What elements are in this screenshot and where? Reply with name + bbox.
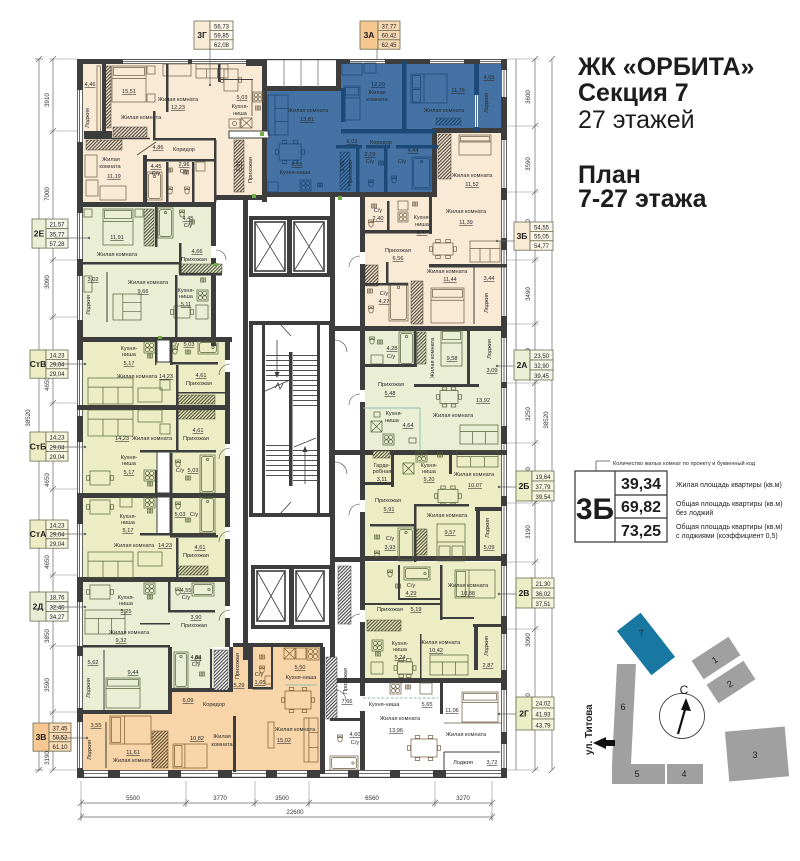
svg-text:3,11: 3,11 — [377, 477, 387, 483]
svg-text:29,04: 29,04 — [49, 372, 65, 378]
svg-text:Секция 7: Секция 7 — [578, 79, 689, 107]
svg-text:3Г: 3Г — [197, 30, 207, 40]
svg-text:ниша: ниша — [122, 461, 137, 467]
svg-text:29,04: 29,04 — [49, 363, 65, 369]
svg-text:11,76: 11,76 — [451, 88, 465, 94]
svg-text:ниша: ниша — [415, 222, 430, 228]
svg-text:5,50: 5,50 — [295, 665, 306, 671]
svg-text:4,29: 4,29 — [406, 591, 417, 597]
svg-text:Жилая: Жилая — [102, 157, 120, 163]
svg-text:5,17: 5,17 — [123, 528, 134, 534]
svg-text:15,51: 15,51 — [122, 89, 136, 95]
svg-text:С/у: С/у — [380, 291, 389, 297]
svg-text:Жилая комната: Жилая комната — [132, 436, 173, 442]
svg-text:ниша: ниша — [385, 418, 400, 424]
svg-text:5,91: 5,91 — [384, 507, 395, 513]
svg-text:Прихожая: Прихожая — [375, 498, 401, 504]
svg-text:2Г: 2Г — [519, 709, 529, 719]
svg-text:Прихожая: Прихожая — [181, 623, 207, 629]
svg-text:14,23: 14,23 — [49, 353, 65, 359]
svg-text:2,19: 2,19 — [365, 152, 376, 158]
svg-text:61,10: 61,10 — [52, 745, 68, 751]
svg-text:35,77: 35,77 — [49, 232, 65, 238]
svg-text:Прихожая: Прихожая — [348, 160, 354, 186]
svg-text:3090: 3090 — [525, 633, 532, 647]
svg-text:12,20: 12,20 — [371, 82, 385, 88]
svg-text:9,66: 9,66 — [138, 289, 149, 295]
svg-text:24,02: 24,02 — [535, 702, 551, 708]
svg-text:3850: 3850 — [44, 629, 51, 643]
svg-text:41,93: 41,93 — [535, 713, 551, 719]
svg-text:54,77: 54,77 — [534, 244, 550, 250]
svg-text:Жилая комната: Жилая комната — [427, 269, 468, 275]
svg-text:5,19: 5,19 — [411, 607, 422, 613]
svg-text:Жилая комната: Жилая комната — [427, 513, 468, 519]
svg-text:С/у: С/у — [387, 354, 396, 360]
svg-text:Жилая комната: Жилая комната — [380, 716, 421, 722]
svg-text:3Б: 3Б — [517, 231, 528, 241]
svg-text:5,29: 5,29 — [234, 683, 245, 689]
svg-text:54,55: 54,55 — [534, 225, 550, 231]
svg-text:комната: комната — [99, 164, 121, 170]
svg-text:4,45: 4,45 — [183, 216, 194, 222]
svg-text:4: 4 — [681, 769, 686, 779]
svg-text:6: 6 — [620, 702, 625, 712]
svg-text:69,82: 69,82 — [621, 499, 661, 516]
svg-text:43,79: 43,79 — [535, 724, 551, 730]
svg-text:5,20: 5,20 — [424, 477, 435, 483]
svg-text:6,55: 6,55 — [292, 162, 303, 168]
svg-text:С/у: С/у — [192, 662, 201, 668]
svg-text:комната: комната — [366, 97, 388, 103]
svg-text:3,02: 3,02 — [88, 277, 99, 283]
svg-text:С/у: С/у — [152, 171, 161, 177]
svg-text:Кухня-ниша: Кухня-ниша — [286, 675, 318, 681]
svg-text:Жилая комната: Жилая комната — [128, 280, 169, 286]
svg-text:29,04: 29,04 — [49, 455, 65, 461]
svg-text:4,45: 4,45 — [151, 164, 162, 170]
svg-text:СтВ: СтВ — [30, 359, 46, 369]
svg-text:11,06: 11,06 — [445, 708, 459, 714]
svg-text:15,02: 15,02 — [277, 738, 291, 744]
svg-text:55,05: 55,05 — [534, 235, 550, 241]
svg-text:С/у: С/у — [366, 159, 375, 165]
svg-text:без лоджий: без лоджий — [676, 509, 713, 517]
svg-text:19,64: 19,64 — [535, 475, 551, 481]
svg-text:С/у: С/у — [351, 740, 360, 746]
svg-text:5,17: 5,17 — [124, 470, 135, 476]
svg-text:Жилая комната: Жилая комната — [448, 583, 489, 589]
svg-text:14,23: 14,23 — [115, 436, 129, 442]
svg-text:5: 5 — [634, 769, 639, 779]
svg-text:Лоджия: Лоджия — [484, 293, 490, 313]
svg-text:4,84: 4,84 — [191, 655, 202, 661]
svg-text:Лоджия: Лоджия — [484, 636, 490, 656]
svg-text:37,79: 37,79 — [535, 485, 551, 491]
svg-text:4,44: 4,44 — [408, 148, 419, 154]
svg-text:Жилая комната: Жилая комната — [454, 472, 495, 478]
svg-text:3: 3 — [752, 750, 757, 760]
svg-text:62,45: 62,45 — [381, 43, 397, 49]
svg-text:2,87: 2,87 — [483, 663, 494, 669]
svg-text:14,23: 14,23 — [158, 543, 172, 549]
svg-text:14,23: 14,23 — [49, 436, 65, 442]
svg-text:23,50: 23,50 — [534, 354, 550, 360]
svg-text:5,03: 5,03 — [175, 512, 186, 518]
svg-text:27 этажей: 27 этажей — [578, 106, 695, 134]
svg-text:С/у: С/у — [386, 536, 395, 542]
svg-text:29,04: 29,04 — [49, 533, 65, 539]
svg-text:5,81: 5,81 — [236, 161, 242, 172]
svg-text:Общая площадь квартиры (кв.м): Общая площадь квартиры (кв.м) — [676, 500, 783, 508]
svg-text:комната: комната — [211, 742, 233, 748]
svg-text:2В: 2В — [519, 588, 530, 598]
svg-text:5,03: 5,03 — [184, 342, 195, 348]
svg-text:С: С — [680, 683, 689, 697]
svg-text:10,07: 10,07 — [468, 483, 482, 489]
svg-text:11,61: 11,61 — [126, 750, 140, 756]
svg-text:ниша: ниша — [422, 469, 437, 475]
svg-text:10,88: 10,88 — [461, 591, 475, 597]
svg-text:ниша: ниша — [233, 111, 248, 117]
svg-text:Жилая комната: Жилая комната — [113, 758, 154, 764]
svg-text:4,05: 4,05 — [484, 75, 495, 81]
svg-text:С/у: С/у — [190, 512, 199, 518]
svg-text:С/у: С/у — [374, 208, 383, 214]
svg-text:Лоджия: Лоджия — [86, 678, 92, 698]
svg-text:32,46: 32,46 — [49, 605, 65, 611]
svg-text:ЖК «ОРБИТА»: ЖК «ОРБИТА» — [577, 53, 754, 81]
svg-text:ниша: ниша — [393, 647, 408, 653]
svg-text:Жилая комната: Жилая комната — [114, 543, 155, 549]
svg-text:робная: робная — [373, 469, 392, 475]
svg-text:9,57: 9,57 — [445, 530, 456, 536]
svg-text:2Д: 2Д — [33, 602, 44, 612]
svg-text:62,08: 62,08 — [214, 43, 230, 49]
svg-text:Жилая комната: Жилая комната — [446, 732, 487, 738]
svg-text:Жилая комната: Жилая комната — [275, 727, 316, 733]
svg-text:Жилая комната: Жилая комната — [158, 97, 199, 103]
svg-text:11,91: 11,91 — [110, 235, 124, 241]
svg-text:5,65: 5,65 — [422, 702, 433, 708]
svg-text:Жилая комната: Жилая комната — [420, 640, 461, 646]
svg-text:3590: 3590 — [525, 157, 532, 171]
svg-text:9,58: 9,58 — [447, 356, 458, 362]
svg-text:Кухня-: Кухня- — [414, 215, 431, 221]
svg-text:18,76: 18,76 — [49, 596, 65, 602]
svg-text:4650: 4650 — [44, 555, 51, 569]
svg-text:Лоджия: Лоджия — [86, 295, 92, 315]
svg-text:2Е: 2Е — [34, 229, 45, 239]
svg-text:3600: 3600 — [525, 90, 532, 104]
svg-text:Лоджия: Лоджия — [484, 93, 490, 113]
svg-text:Прихожая: Прихожая — [186, 381, 212, 387]
svg-text:11,52: 11,52 — [465, 182, 479, 188]
svg-text:60,42: 60,42 — [381, 34, 397, 40]
svg-text:59,52: 59,52 — [52, 736, 68, 742]
svg-text:3,72: 3,72 — [487, 760, 498, 766]
svg-text:3А: 3А — [364, 30, 375, 40]
svg-text:12,23: 12,23 — [171, 105, 185, 111]
svg-text:Жилая: Жилая — [368, 90, 386, 96]
svg-text:5,09: 5,09 — [484, 545, 495, 551]
svg-text:3,55: 3,55 — [91, 723, 102, 729]
svg-text:Прихожая: Прихожая — [385, 248, 411, 254]
svg-text:59,85: 59,85 — [214, 34, 230, 40]
svg-text:С/у: С/у — [398, 159, 407, 165]
svg-text:11,44: 11,44 — [443, 277, 457, 283]
svg-text:С/у: С/у — [171, 342, 180, 348]
svg-text:2Б: 2Б — [519, 481, 530, 491]
svg-text:Жилая комната: Жилая комната — [288, 108, 329, 114]
svg-text:56,73: 56,73 — [214, 24, 230, 30]
svg-text:37,45: 37,45 — [52, 726, 68, 732]
svg-text:Жилая: Жилая — [213, 734, 231, 740]
svg-text:13,81: 13,81 — [300, 117, 314, 123]
svg-text:7-27 этажа: 7-27 этажа — [578, 185, 708, 213]
svg-text:3,44: 3,44 — [484, 276, 495, 282]
svg-text:С/у: С/у — [184, 223, 193, 229]
svg-text:Коридор: Коридор — [203, 702, 225, 708]
svg-text:Прихожая: Прихожая — [343, 668, 349, 694]
svg-text:С/у: С/у — [180, 169, 189, 175]
svg-text:Кухня-: Кухня- — [232, 104, 249, 110]
svg-text:3270: 3270 — [456, 795, 470, 802]
svg-text:Количество жилых комнат по про: Количество жилых комнат по проекту и бук… — [613, 460, 756, 467]
svg-text:22600: 22600 — [286, 809, 304, 816]
svg-text:Жилая комната: Жилая комната — [433, 413, 474, 419]
svg-text:39,34: 39,34 — [621, 476, 661, 493]
svg-text:6,56: 6,56 — [393, 256, 404, 262]
svg-text:5,24: 5,24 — [395, 655, 406, 661]
svg-text:Коридор: Коридор — [173, 147, 195, 153]
svg-text:Жилая комната: Жилая комната — [452, 173, 493, 179]
svg-text:4,60: 4,60 — [350, 732, 361, 738]
svg-text:3190: 3190 — [44, 751, 51, 765]
svg-text:5500: 5500 — [126, 795, 140, 802]
svg-text:Жилая комната: Жилая комната — [109, 630, 150, 636]
svg-text:С/у: С/у — [182, 595, 191, 601]
svg-text:13,92: 13,92 — [476, 398, 490, 404]
svg-text:Кухня-ниша: Кухня-ниша — [369, 702, 401, 708]
svg-text:Жилая площадь квартиры (кв.м): Жилая площадь квартиры (кв.м) — [676, 482, 782, 489]
svg-text:11,39: 11,39 — [459, 220, 473, 226]
svg-text:Прихожая: Прихожая — [235, 653, 241, 679]
svg-text:7000: 7000 — [44, 187, 51, 201]
svg-text:21,30: 21,30 — [535, 582, 551, 588]
svg-text:Жилая комната: Жилая комната — [446, 209, 487, 215]
svg-text:Жилая комната: Жилая комната — [117, 374, 158, 380]
svg-text:34,27: 34,27 — [49, 615, 65, 621]
svg-text:ниша: ниша — [119, 601, 134, 607]
svg-text:ул. Титова: ул. Титова — [584, 704, 595, 755]
svg-text:Прихожая: Прихожая — [248, 157, 254, 183]
svg-text:1,65: 1,65 — [255, 680, 266, 686]
svg-text:38520: 38520 — [543, 411, 550, 429]
svg-text:5,25: 5,25 — [121, 609, 132, 615]
svg-text:Лоджия: Лоджия — [453, 760, 473, 766]
svg-text:3500: 3500 — [275, 795, 289, 802]
svg-text:3090: 3090 — [44, 275, 51, 289]
svg-text:29,04: 29,04 — [49, 542, 65, 548]
svg-text:73,25: 73,25 — [621, 523, 661, 540]
svg-text:ниша: ниша — [121, 520, 136, 526]
svg-text:Общая площадь квартиры (кв.м): Общая площадь квартиры (кв.м) — [676, 523, 783, 531]
svg-text:4,61: 4,61 — [193, 428, 204, 434]
svg-text:37,51: 37,51 — [535, 602, 551, 608]
svg-text:3Б: 3Б — [576, 493, 614, 526]
svg-text:3190: 3190 — [525, 525, 532, 539]
svg-text:Лоджия: Лоджия — [485, 518, 491, 538]
svg-text:5,11: 5,11 — [181, 302, 191, 308]
svg-text:Жилая комната: Жилая комната — [121, 115, 162, 121]
svg-text:5,62: 5,62 — [88, 660, 99, 666]
svg-text:21,57: 21,57 — [49, 223, 65, 229]
svg-text:Прихожая: Прихожая — [181, 257, 207, 263]
svg-text:Жилая комната: Жилая комната — [97, 252, 138, 258]
svg-text:Жилая комната: Жилая комната — [424, 108, 465, 114]
svg-text:3,45: 3,45 — [340, 161, 346, 172]
svg-text:С/у: С/у — [255, 672, 264, 678]
svg-text:Прихожая: Прихожая — [183, 436, 209, 442]
svg-text:38520: 38520 — [25, 409, 32, 427]
svg-text:32,90: 32,90 — [534, 364, 550, 370]
svg-text:3В: 3В — [36, 732, 47, 742]
svg-text:57,28: 57,28 — [49, 242, 65, 248]
svg-text:36,02: 36,02 — [535, 592, 551, 598]
svg-text:5,47: 5,47 — [417, 230, 428, 236]
svg-text:Кухня-ниша: Кухня-ниша — [280, 170, 312, 176]
svg-text:С/у: С/у — [176, 468, 185, 474]
svg-text:29,04: 29,04 — [49, 445, 65, 451]
svg-text:5,48: 5,48 — [385, 391, 396, 397]
svg-text:9,44: 9,44 — [128, 670, 139, 676]
svg-text:с лоджиями (коэффициент 0,5): с лоджиями (коэффициент 0,5) — [676, 533, 778, 540]
svg-text:9,32: 9,32 — [116, 638, 127, 644]
svg-text:6560: 6560 — [365, 795, 379, 802]
svg-text:Коридор: Коридор — [370, 140, 392, 146]
svg-text:4,46: 4,46 — [85, 82, 96, 88]
svg-text:4,66: 4,66 — [192, 249, 203, 255]
svg-text:11,19: 11,19 — [107, 174, 121, 180]
svg-text:Кухня-: Кухня- — [386, 411, 403, 417]
svg-text:5,03: 5,03 — [237, 95, 248, 101]
svg-text:Лоджия: Лоджия — [85, 108, 91, 128]
svg-text:4,64: 4,64 — [403, 423, 414, 429]
svg-text:14,23: 14,23 — [159, 374, 173, 380]
svg-text:6,02: 6,02 — [347, 139, 358, 145]
svg-text:7,66: 7,66 — [342, 699, 353, 705]
svg-text:10,42: 10,42 — [429, 648, 443, 654]
svg-text:37,77: 37,77 — [381, 24, 397, 30]
svg-text:4,61: 4,61 — [196, 373, 207, 379]
svg-text:4,86: 4,86 — [153, 145, 164, 151]
svg-text:Лоджия: Лоджия — [87, 740, 93, 760]
svg-text:13,96: 13,96 — [389, 728, 403, 734]
svg-text:14,23: 14,23 — [49, 523, 65, 529]
svg-text:СтБ: СтБ — [30, 442, 46, 452]
svg-text:3,93: 3,93 — [385, 545, 396, 551]
svg-text:4650: 4650 — [44, 473, 51, 487]
svg-text:3770: 3770 — [213, 795, 227, 802]
svg-text:4,55: 4,55 — [181, 588, 192, 594]
svg-text:Лоджия: Лоджия — [487, 339, 493, 359]
svg-text:2А: 2А — [517, 360, 528, 370]
svg-text:Прихожая: Прихожая — [183, 553, 209, 559]
svg-text:СтА: СтА — [30, 529, 46, 539]
svg-text:3590: 3590 — [44, 678, 51, 692]
svg-text:ниша: ниша — [179, 294, 194, 300]
svg-text:4650: 4650 — [44, 377, 51, 391]
svg-text:ниша: ниша — [122, 352, 137, 358]
svg-text:4,28: 4,28 — [387, 346, 398, 352]
svg-text:3490: 3490 — [525, 287, 532, 301]
svg-text:3910: 3910 — [44, 93, 51, 107]
svg-text:10,82: 10,82 — [190, 736, 204, 742]
svg-text:Прихожая: Прихожая — [378, 382, 404, 388]
svg-text:2,40: 2,40 — [373, 216, 384, 222]
svg-text:Прихожая: Прихожая — [377, 607, 403, 613]
svg-text:39,45: 39,45 — [534, 374, 550, 380]
svg-text:3,09: 3,09 — [487, 368, 498, 374]
svg-text:3,90: 3,90 — [191, 615, 202, 621]
svg-text:6,09: 6,09 — [183, 698, 194, 704]
svg-text:5,03: 5,03 — [188, 468, 199, 474]
svg-text:39,54: 39,54 — [535, 495, 551, 501]
svg-text:С/у: С/у — [407, 583, 416, 589]
svg-text:4,27: 4,27 — [379, 299, 390, 305]
svg-text:2,96: 2,96 — [179, 162, 190, 168]
svg-text:Жилая комната: Жилая комната — [430, 337, 436, 378]
svg-text:3250: 3250 — [525, 407, 532, 421]
svg-text:5,17: 5,17 — [124, 361, 135, 367]
svg-text:4,61: 4,61 — [195, 545, 206, 551]
